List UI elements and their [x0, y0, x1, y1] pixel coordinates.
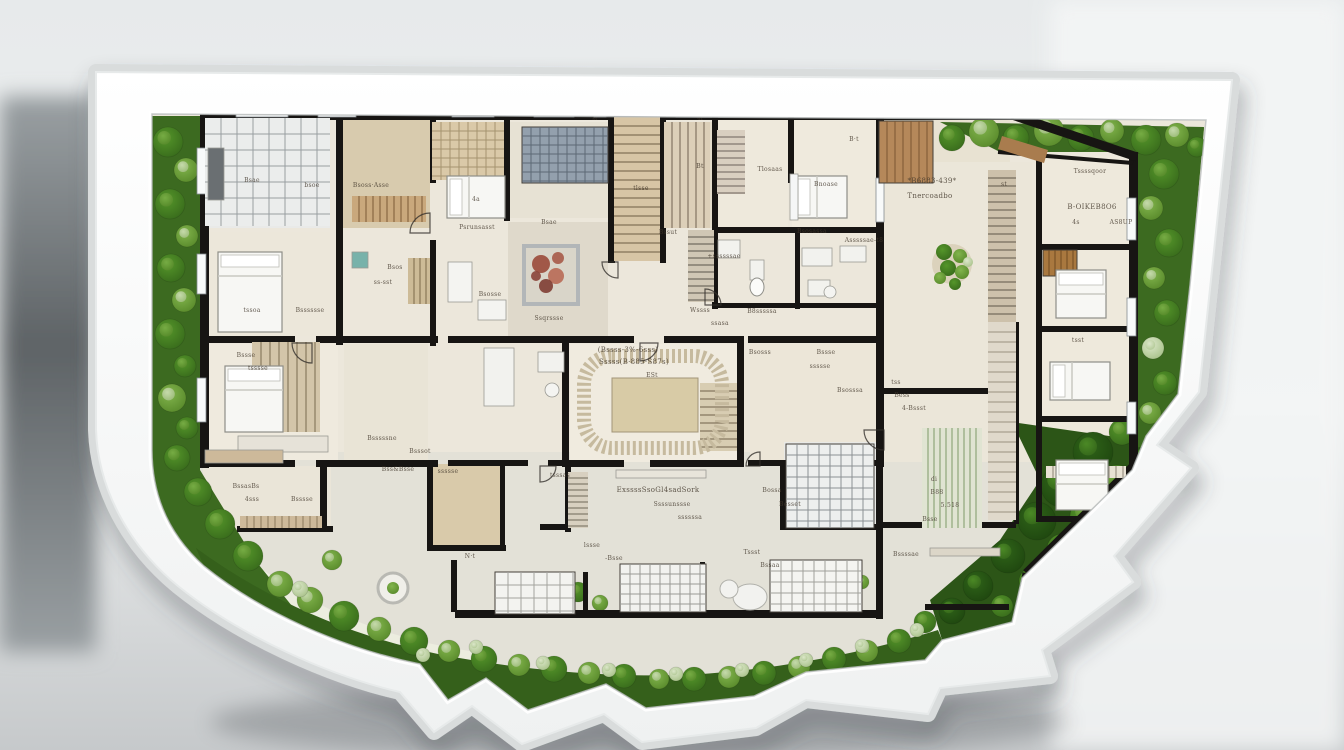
tree-highlight — [912, 625, 918, 631]
tree-highlight — [371, 620, 382, 631]
wall — [448, 460, 528, 466]
plan-label: AS8UP — [1109, 219, 1133, 226]
tree-highlight — [581, 665, 591, 675]
tree-highlight — [943, 129, 955, 141]
plan-label: Wssss — [690, 307, 710, 314]
tree-highlight — [826, 650, 837, 661]
plan-label: *B6883-439* — [908, 177, 957, 185]
table-plant — [949, 278, 961, 290]
hatch-fill — [988, 170, 1016, 322]
tree-highlight — [178, 161, 189, 172]
toilet — [750, 278, 764, 296]
fixture — [538, 352, 564, 372]
fixture — [750, 260, 764, 280]
tree-highlight — [325, 553, 334, 562]
terrace-chair — [720, 580, 738, 598]
plan-label: lssse — [584, 542, 600, 549]
tree-highlight — [161, 258, 174, 271]
table-plant — [955, 265, 969, 279]
plan-label: B-OIKEB8O6 — [1067, 203, 1117, 211]
wall — [650, 460, 744, 467]
plan-label: Bsssot — [409, 448, 431, 455]
plan-label: 5.518 — [941, 502, 960, 509]
red-plant — [552, 252, 564, 264]
plan-label: tsssse — [248, 365, 268, 372]
wall — [430, 240, 436, 346]
tree-highlight — [857, 641, 863, 647]
tree-highlight — [162, 388, 175, 401]
plan-label: ExssssSsoGl4sadSork — [617, 486, 700, 494]
tree-highlight — [801, 655, 807, 661]
fixture — [840, 246, 866, 262]
plan-label: Psrunsasst — [459, 224, 495, 231]
tree-highlight — [238, 545, 252, 559]
plan-label: Ssssunssse — [654, 501, 691, 508]
hatch-fill — [522, 127, 608, 183]
tree-highlight — [1158, 304, 1170, 316]
bed-pillow — [1053, 365, 1065, 397]
tree-highlight — [418, 650, 424, 656]
plan-label: (Bssss-3%-6sss) — [598, 346, 659, 354]
plan-label: tsst — [1072, 337, 1084, 344]
wall — [316, 460, 438, 467]
wall — [876, 462, 883, 619]
fixture — [448, 262, 472, 302]
tree-highlight — [604, 665, 610, 671]
tree-highlight — [652, 672, 661, 681]
tree-highlight — [538, 658, 544, 664]
window — [197, 254, 206, 294]
tree-highlight — [334, 605, 348, 619]
fixture — [478, 300, 506, 320]
bed-pillow — [221, 255, 279, 267]
plan-label: Bsosassa — [797, 228, 827, 235]
wall — [1040, 416, 1132, 422]
floor-plan-rendering: BsaebsoeBsoss·Asse4aPsrunsasstBsaetlsseB… — [0, 0, 1344, 750]
plan-label: Bsssssse — [296, 307, 325, 314]
plan-label: Bssut — [659, 229, 678, 236]
wall — [583, 572, 588, 612]
plan-label: 4sss — [245, 496, 259, 503]
wall — [540, 524, 571, 530]
window — [197, 148, 206, 194]
plan-label: Bssssae — [893, 551, 919, 558]
window — [1127, 402, 1136, 434]
tree-highlight — [968, 575, 982, 589]
hatch-fill — [664, 122, 710, 228]
plan-label: +ssssssae — [707, 253, 740, 260]
plan-label: Bsoss·Asse — [353, 182, 389, 189]
fixture — [484, 348, 514, 406]
plan-label: Bss&Bsse — [382, 466, 415, 473]
plan-label: Bssse — [237, 352, 256, 359]
plan-label: Bt — [696, 163, 704, 170]
tree-highlight — [594, 597, 601, 604]
hatch-fill — [717, 130, 745, 194]
plan-label: Asssssae-t8 — [844, 237, 883, 244]
plan-label: Bsosssa — [837, 387, 863, 394]
red-plant — [539, 279, 553, 293]
plan-label: ESt — [646, 372, 658, 379]
tree-highlight — [686, 670, 697, 681]
tree-highlight — [1146, 270, 1156, 280]
tree-highlight — [671, 669, 677, 675]
wall — [451, 560, 457, 612]
plan-label: Bsssssne — [367, 435, 397, 442]
wall — [788, 111, 794, 183]
tree-highlight — [917, 614, 927, 624]
round-planter-plant — [387, 582, 399, 594]
wall — [427, 545, 506, 551]
table-plant — [936, 244, 952, 260]
red-plant — [531, 271, 541, 281]
plan-label: tssoa — [243, 307, 260, 314]
tree-highlight — [616, 667, 627, 678]
wall — [737, 336, 744, 467]
plan-label: 4-Bssst — [902, 405, 926, 412]
tree-highlight — [1159, 233, 1172, 246]
tree-highlight — [168, 449, 180, 461]
bed-pillow — [798, 179, 810, 215]
tree-highlight — [511, 657, 521, 667]
plan-label: Bsosss — [749, 349, 771, 356]
plan-label: Sssss(B·885·S87s) — [599, 358, 669, 366]
wall — [427, 462, 433, 549]
red-plant — [532, 255, 550, 273]
plan-label: Bsae — [244, 177, 260, 184]
plan-label: Bssse — [817, 349, 836, 356]
plan-label: Besset — [779, 501, 801, 508]
left-shadow-band — [0, 96, 96, 652]
tree-highlight — [1154, 163, 1168, 177]
tree-highlight — [1145, 340, 1155, 350]
tree-highlight — [179, 420, 189, 430]
plan-label: Ssqrssse — [534, 315, 563, 322]
tree-highlight — [737, 665, 743, 671]
wall — [712, 303, 878, 308]
plan-label: ssssssa — [678, 514, 702, 521]
tree-highlight — [271, 575, 283, 587]
fixture — [930, 548, 1000, 556]
tree-highlight — [177, 358, 187, 368]
plan-label: tsssas — [550, 472, 570, 479]
wall — [780, 462, 786, 530]
wall — [562, 336, 634, 343]
tree-highlight — [404, 631, 417, 644]
plan-label: ssasa — [711, 320, 729, 327]
wall — [203, 336, 295, 343]
plan-label: 4s — [1072, 219, 1080, 226]
wall — [316, 336, 438, 343]
tree-highlight — [974, 121, 988, 135]
plan-label: st — [1001, 181, 1007, 188]
plan-label: Tlosaas — [758, 166, 783, 173]
plan-label: 4a — [472, 196, 480, 203]
plan-label: Tssst — [744, 549, 761, 556]
plan-label: Bess — [894, 392, 909, 399]
plan-label: B·t — [849, 136, 859, 143]
fixture — [802, 248, 832, 266]
tree-highlight — [158, 131, 172, 145]
fixture — [616, 470, 706, 478]
plan-label: B8sssssa — [747, 308, 777, 315]
window — [876, 178, 884, 222]
tree-highlight — [1143, 199, 1154, 210]
bed-pillow — [1059, 463, 1105, 475]
fixture — [205, 450, 283, 463]
wall — [748, 336, 878, 343]
hatch-fill — [688, 230, 714, 302]
tree-highlight — [188, 482, 201, 495]
bed-pillow — [450, 179, 462, 215]
plan-label: Bssaa — [760, 562, 779, 569]
hatch-fill — [620, 564, 706, 612]
plan-label: di — [931, 476, 937, 483]
tree-highlight — [1104, 122, 1115, 133]
tree-highlight — [160, 323, 174, 337]
tree-highlight — [891, 632, 902, 643]
tree-highlight — [176, 291, 187, 302]
tree-highlight — [721, 669, 731, 679]
plan-label: Bsssse — [291, 496, 313, 503]
table-plant — [963, 257, 973, 267]
tree-highlight — [1169, 126, 1180, 137]
atrium-core — [612, 378, 698, 432]
hatch-fill — [408, 258, 430, 304]
fixture — [790, 174, 798, 220]
tree-highlight — [294, 583, 301, 590]
plan-label: Tnercoadbo — [907, 192, 952, 200]
window — [197, 378, 206, 422]
table-plant — [934, 272, 946, 284]
plan-label: -Bsse — [605, 555, 623, 562]
plan-label: B88 — [931, 489, 944, 496]
plan-label: tss — [891, 379, 900, 386]
plan-label: Bossa — [762, 487, 781, 494]
fixture — [352, 252, 368, 268]
bed-pillow — [1059, 273, 1103, 285]
tree-highlight — [179, 228, 189, 238]
window — [1127, 298, 1136, 336]
tree-highlight — [210, 513, 224, 527]
hatch-fill — [495, 572, 575, 614]
plan-label: bsoe — [304, 182, 319, 189]
plan-canvas: BsaebsoeBsoss·Asse4aPsrunsasstBsaetlsseB… — [0, 0, 1344, 750]
plan-label: Bsse — [922, 516, 937, 523]
wall — [925, 604, 1009, 610]
wall — [795, 227, 800, 309]
tree-highlight — [1190, 140, 1199, 149]
plan-label: ssssse — [438, 468, 459, 475]
sink — [545, 383, 559, 397]
sink — [824, 286, 836, 298]
tree-highlight — [1079, 437, 1097, 455]
tree-highlight — [756, 664, 767, 675]
plan-label: ssssse — [810, 363, 831, 370]
plan-label: ss-sst — [374, 279, 393, 286]
tree-highlight — [1136, 129, 1150, 143]
fixture — [208, 148, 224, 200]
tree-highlight — [1113, 423, 1125, 435]
tree-highlight — [471, 642, 477, 648]
wall — [500, 462, 505, 549]
plan-label: N·t — [465, 553, 476, 560]
room-floor-patch — [432, 464, 502, 546]
plan-label: Tssssqoor — [1074, 168, 1107, 175]
wall — [1036, 150, 1042, 522]
tree-highlight — [441, 643, 451, 653]
wall — [548, 460, 610, 466]
plan-label: Bsae — [541, 219, 557, 226]
tree-highlight — [1142, 405, 1152, 415]
plan-label: tlsse — [633, 185, 649, 192]
wall — [1040, 244, 1132, 250]
wall — [664, 336, 744, 343]
wall — [336, 111, 343, 345]
plan-label: BssasBs — [233, 483, 260, 490]
plan-label: Bsos — [387, 264, 402, 271]
plan-label: Bnoase — [814, 181, 838, 188]
wall — [1040, 326, 1132, 332]
tree-highlight — [1157, 374, 1168, 385]
wall — [608, 111, 615, 263]
room-floor-patch — [344, 344, 428, 460]
tree-highlight — [160, 193, 174, 207]
plan-label: Bsosse — [479, 291, 502, 298]
